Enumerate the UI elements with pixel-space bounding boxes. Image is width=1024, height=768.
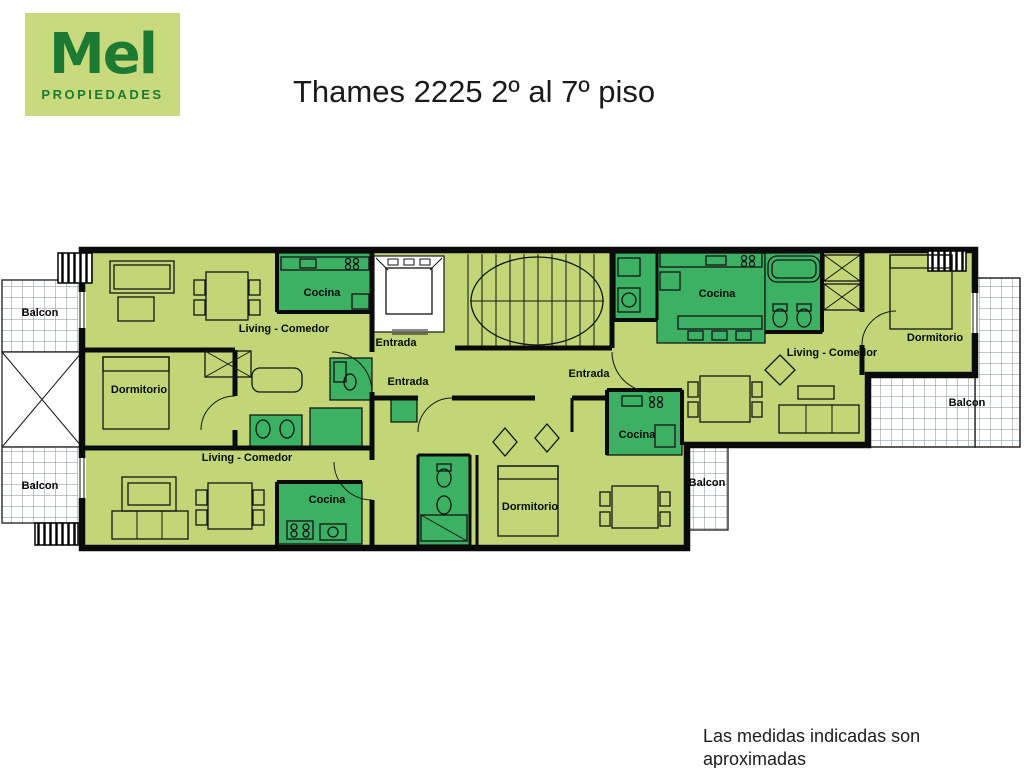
page: Mel PROPIEDADES Thames 2225 2º al 7º pis… <box>0 0 1024 768</box>
label-dormitorio-center: Dormitorio <box>502 501 559 513</box>
label-living-comedor-right: Living - Comedor <box>787 347 878 359</box>
label-entrada-3: Entrada <box>569 368 611 380</box>
label-cocina-right: Cocina <box>699 288 737 300</box>
label-balcon-bottom-center: Balcon <box>689 477 726 489</box>
elevator <box>374 256 444 334</box>
label-balcon-right: Balcon <box>949 397 986 409</box>
label-living-comedor-bottom-left: Living - Comedor <box>202 452 293 464</box>
label-dormitorio-right: Dormitorio <box>907 332 964 344</box>
label-entrada-1: Entrada <box>376 337 418 349</box>
label-cocina-center: Cocina <box>619 429 657 441</box>
disclaimer-line-1: Las medidas indicadas son aproximadas <box>703 725 1024 768</box>
label-balcon-bottom-left: Balcon <box>22 480 59 492</box>
label-cocina-bottom-left: Cocina <box>309 494 347 506</box>
label-living-comedor-top-left: Living - Comedor <box>239 323 330 335</box>
label-entrada-2: Entrada <box>388 376 430 388</box>
label-cocina-top-left: Cocina <box>304 287 342 299</box>
label-dormitorio-left: Dormitorio <box>111 384 168 396</box>
floor-plan: Balcon Balcon Balcon Balcon Cocina Cocin… <box>0 0 1024 768</box>
label-balcon-top-left: Balcon <box>22 307 59 319</box>
disclaimer: Las medidas indicadas son aproximadas y … <box>703 725 1024 768</box>
